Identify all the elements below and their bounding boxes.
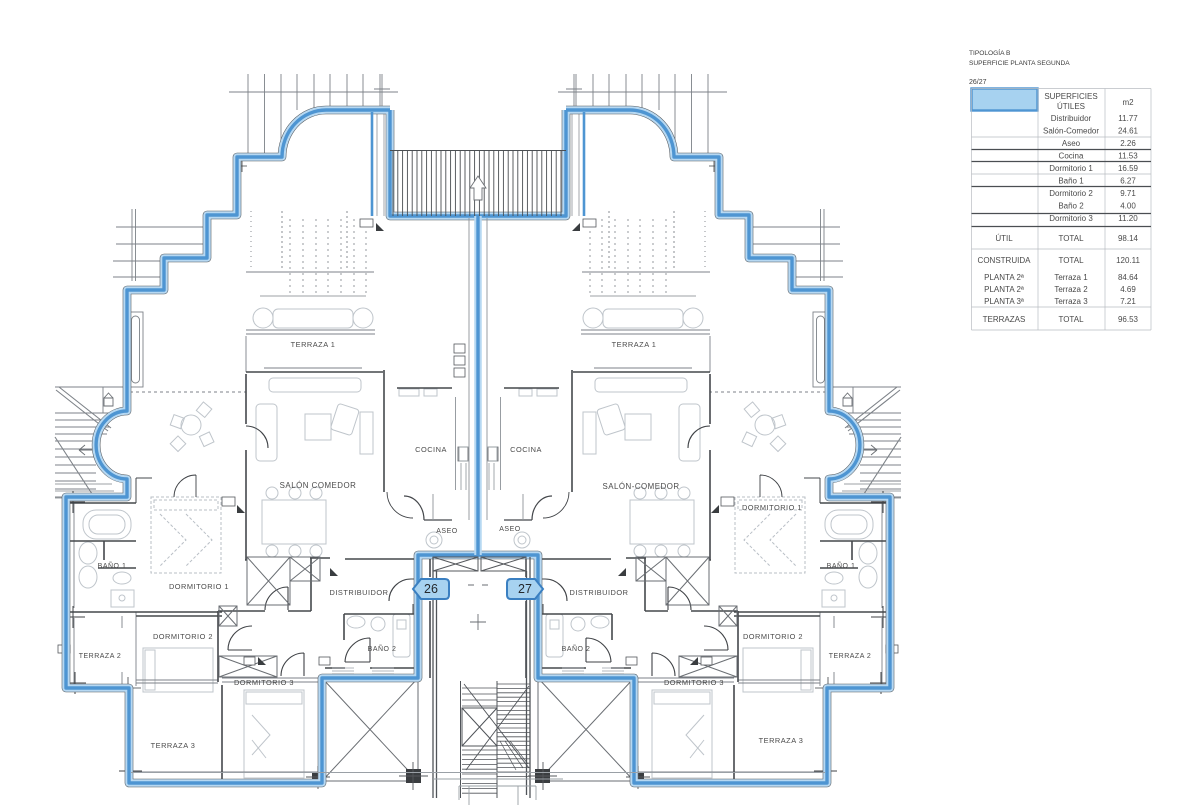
svg-text:DISTRIBUIDOR: DISTRIBUIDOR xyxy=(330,588,389,597)
svg-text:TIPOLOGÍA B: TIPOLOGÍA B xyxy=(969,48,1011,57)
svg-text:11.77: 11.77 xyxy=(1118,114,1138,123)
svg-text:DORMITORIO 2: DORMITORIO 2 xyxy=(153,632,213,641)
svg-text:TERRAZA 1: TERRAZA 1 xyxy=(612,340,657,349)
svg-text:Baño 2: Baño 2 xyxy=(1058,202,1084,211)
svg-text:84.64: 84.64 xyxy=(1118,273,1139,282)
svg-text:Terraza 1: Terraza 1 xyxy=(1054,273,1088,282)
svg-text:24.61: 24.61 xyxy=(1118,127,1139,136)
svg-text:6.27: 6.27 xyxy=(1120,177,1136,186)
svg-text:Terraza 3: Terraza 3 xyxy=(1054,297,1088,306)
svg-text:TERRAZAS: TERRAZAS xyxy=(983,315,1026,324)
svg-text:CONSTRUIDA: CONSTRUIDA xyxy=(978,256,1032,265)
svg-text:DORMITORIO 2: DORMITORIO 2 xyxy=(743,632,803,641)
svg-text:SALÓN COMEDOR: SALÓN COMEDOR xyxy=(280,481,357,490)
svg-text:ÚTIL: ÚTIL xyxy=(995,234,1013,243)
svg-text:Aseo: Aseo xyxy=(1062,139,1081,148)
svg-text:BAÑO 2: BAÑO 2 xyxy=(368,644,397,653)
svg-text:DISTRIBUIDOR: DISTRIBUIDOR xyxy=(570,588,629,597)
svg-text:4.69: 4.69 xyxy=(1120,285,1136,294)
svg-text:26: 26 xyxy=(424,582,438,596)
svg-text:m2: m2 xyxy=(1122,98,1134,107)
svg-text:TERRAZA 3: TERRAZA 3 xyxy=(151,741,196,750)
svg-text:PLANTA 2ª: PLANTA 2ª xyxy=(984,285,1024,294)
svg-text:TERRAZA 1: TERRAZA 1 xyxy=(291,340,336,349)
svg-text:11.53: 11.53 xyxy=(1118,152,1138,161)
svg-text:Baño 1: Baño 1 xyxy=(1058,177,1084,186)
svg-text:COCINA: COCINA xyxy=(415,445,447,454)
svg-text:98.14: 98.14 xyxy=(1118,234,1139,243)
svg-text:SUPERFICIES: SUPERFICIES xyxy=(1044,92,1097,101)
svg-text:PLANTA 3ª: PLANTA 3ª xyxy=(984,297,1024,306)
svg-text:TOTAL: TOTAL xyxy=(1058,315,1084,324)
svg-text:Dormitorio 1: Dormitorio 1 xyxy=(1049,164,1093,173)
svg-text:TOTAL: TOTAL xyxy=(1058,256,1084,265)
svg-text:ASEO: ASEO xyxy=(499,526,521,533)
svg-text:PLANTA 2ª: PLANTA 2ª xyxy=(984,273,1024,282)
svg-text:Terraza 2: Terraza 2 xyxy=(1054,285,1088,294)
svg-text:11.20: 11.20 xyxy=(1118,214,1138,223)
svg-text:DORMITORIO 1: DORMITORIO 1 xyxy=(742,503,802,512)
svg-text:Salón-Comedor: Salón-Comedor xyxy=(1043,127,1099,136)
svg-text:Distribuidor: Distribuidor xyxy=(1051,114,1092,123)
svg-text:7.21: 7.21 xyxy=(1120,297,1136,306)
svg-text:2.26: 2.26 xyxy=(1120,139,1136,148)
svg-text:9.71: 9.71 xyxy=(1120,189,1136,198)
svg-text:SALÓN-COMEDOR: SALÓN-COMEDOR xyxy=(602,482,679,491)
svg-text:Dormitorio 3: Dormitorio 3 xyxy=(1049,214,1093,223)
svg-text:Dormitorio 2: Dormitorio 2 xyxy=(1049,189,1093,198)
svg-text:120.11: 120.11 xyxy=(1116,256,1140,265)
svg-text:TOTAL: TOTAL xyxy=(1058,234,1084,243)
svg-text:96.53: 96.53 xyxy=(1118,315,1139,324)
svg-text:DORMITORIO 1: DORMITORIO 1 xyxy=(169,582,229,591)
svg-text:BAÑO 2: BAÑO 2 xyxy=(562,644,591,653)
svg-text:27: 27 xyxy=(518,582,532,596)
svg-text:BAÑO 1: BAÑO 1 xyxy=(827,561,856,570)
svg-text:TERRAZA 2: TERRAZA 2 xyxy=(829,653,872,660)
svg-text:COCINA: COCINA xyxy=(510,445,542,454)
svg-text:TERRAZA 3: TERRAZA 3 xyxy=(759,736,804,745)
svg-text:ASEO: ASEO xyxy=(436,528,458,535)
svg-text:BAÑO 1: BAÑO 1 xyxy=(98,561,127,570)
svg-text:TERRAZA 2: TERRAZA 2 xyxy=(79,653,122,660)
svg-text:SUPERFICIE PLANTA SEGUNDA: SUPERFICIE PLANTA SEGUNDA xyxy=(969,60,1070,67)
svg-text:Cocina: Cocina xyxy=(1059,152,1084,161)
svg-text:4.00: 4.00 xyxy=(1120,202,1136,211)
svg-text:ÚTILES: ÚTILES xyxy=(1057,102,1085,111)
svg-text:26/27: 26/27 xyxy=(969,79,987,86)
svg-text:16.59: 16.59 xyxy=(1118,164,1139,173)
svg-text:DORMITORIO 3: DORMITORIO 3 xyxy=(664,678,724,687)
svg-text:DORMITORIO 3: DORMITORIO 3 xyxy=(234,678,294,687)
